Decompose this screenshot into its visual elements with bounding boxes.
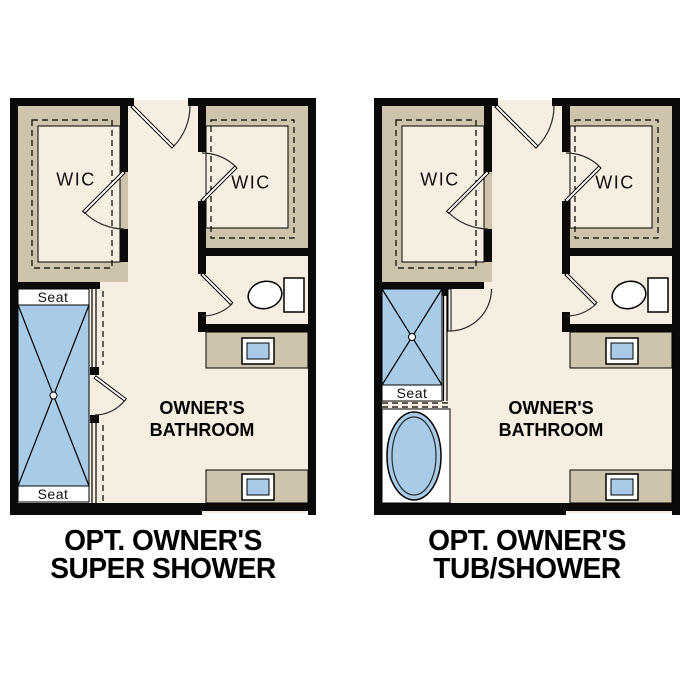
bathroom-label-line2: BATHROOM [499, 419, 604, 441]
plan-title-line2: TUB/SHOWER [379, 555, 676, 583]
sink-lower [606, 474, 638, 500]
tub [382, 409, 450, 503]
plan-title-line2: SUPER SHOWER [15, 555, 312, 583]
wic-left-label: WIC [420, 170, 460, 191]
shower-drain [409, 334, 416, 341]
floorplan-drawing-super-shower [10, 98, 316, 515]
floorplan-tub-shower: WIC WIC Seat OWNER'S BATHROOM [374, 98, 680, 515]
floorplan-super-shower: WIC WIC Seat Seat OWNER'S BATHROOM [10, 98, 316, 515]
bathroom-label: OWNER'S BATHROOM [150, 397, 255, 441]
shower-drain [50, 392, 57, 399]
sink-lower [242, 474, 274, 500]
vanity-lower [206, 470, 308, 503]
sink-upper [606, 338, 638, 364]
plan-title-line1: OPT. OWNER'S [379, 527, 676, 555]
toilet-tank [648, 278, 668, 312]
floorplan-drawing-tub-shower [374, 98, 680, 515]
plan-title-line1: OPT. OWNER'S [15, 527, 312, 555]
wic-left-label: WIC [56, 170, 96, 191]
bathroom-label-line1: OWNER'S [150, 397, 255, 419]
wic-right-label: WIC [595, 173, 635, 194]
shower-seat-top-label: Seat [38, 289, 69, 305]
wic-left-room [18, 106, 128, 282]
toilet-tank [284, 278, 304, 312]
vanity-lower [570, 470, 672, 503]
plan-title-super-shower: OPT. OWNER'S SUPER SHOWER [15, 527, 312, 583]
bathroom-label-line2: BATHROOM [150, 419, 255, 441]
wic-right-label: WIC [231, 173, 271, 194]
vanity-upper [206, 332, 308, 368]
plan-title-tub-shower: OPT. OWNER'S TUB/SHOWER [379, 527, 676, 583]
shower-seat-bottom-label: Seat [38, 486, 69, 502]
bathroom-label-line1: OWNER'S [499, 397, 604, 419]
wic-left-room [382, 106, 492, 282]
tub-basin [387, 412, 441, 500]
shower-seat-label: Seat [397, 385, 428, 401]
bathroom-label: OWNER'S BATHROOM [499, 397, 604, 441]
sink-upper [242, 338, 274, 364]
vanity-upper [570, 332, 672, 368]
